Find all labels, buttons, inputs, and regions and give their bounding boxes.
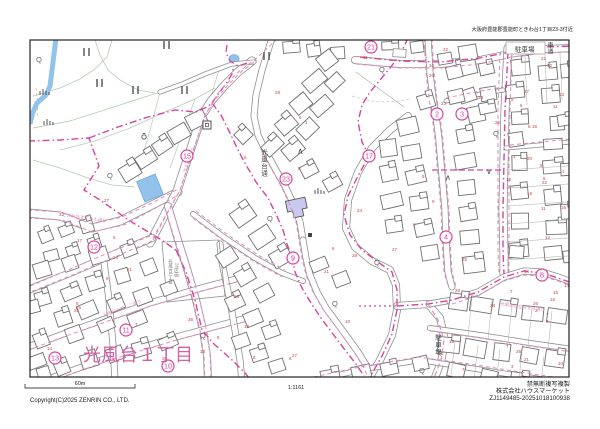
- svg-text:23: 23: [282, 174, 290, 183]
- svg-text:26区画: 26区画: [174, 263, 180, 278]
- svg-text:16: 16: [234, 294, 240, 299]
- svg-text:Copyright(C)2025 ZENRIN CO., L: Copyright(C)2025 ZENRIN CO., LTD.: [30, 398, 130, 404]
- svg-text:22: 22: [542, 180, 548, 185]
- svg-text:25: 25: [462, 257, 468, 262]
- svg-text:車道: 車道: [546, 41, 553, 55]
- svg-text:26: 26: [516, 349, 522, 354]
- svg-text:Q: Q: [36, 55, 42, 64]
- svg-text:15: 15: [449, 339, 455, 344]
- svg-text:20: 20: [527, 156, 533, 161]
- svg-text:10: 10: [345, 319, 351, 324]
- svg-text:11: 11: [363, 55, 368, 60]
- svg-text:13: 13: [51, 353, 59, 362]
- svg-text:27: 27: [292, 353, 298, 358]
- svg-text:25: 25: [76, 305, 82, 310]
- svg-text:15: 15: [553, 290, 559, 295]
- svg-text:11: 11: [553, 104, 558, 109]
- svg-text:15: 15: [183, 151, 191, 160]
- svg-text:21: 21: [367, 42, 375, 51]
- svg-text:14: 14: [524, 269, 530, 274]
- svg-text:1:1161: 1:1161: [288, 385, 304, 391]
- svg-text:13: 13: [559, 92, 565, 97]
- svg-text:4: 4: [444, 232, 448, 241]
- svg-text:21: 21: [524, 357, 530, 362]
- svg-text:Q: Q: [374, 258, 380, 267]
- svg-text:27: 27: [524, 89, 530, 94]
- svg-text:28: 28: [455, 288, 461, 293]
- svg-text:28: 28: [275, 90, 281, 95]
- svg-text:22: 22: [541, 56, 547, 61]
- svg-text:12: 12: [547, 63, 553, 68]
- svg-text:Q: Q: [419, 366, 425, 375]
- svg-text:8: 8: [540, 270, 544, 279]
- svg-text:12: 12: [90, 242, 98, 251]
- svg-text:∧: ∧: [297, 146, 304, 156]
- svg-text:17: 17: [365, 151, 373, 160]
- svg-text:26: 26: [429, 73, 435, 78]
- svg-text:Q: Q: [493, 129, 499, 138]
- svg-text:13: 13: [244, 324, 250, 329]
- svg-text:16: 16: [561, 205, 567, 210]
- svg-text:Q: Q: [267, 214, 273, 223]
- svg-text:26: 26: [533, 301, 539, 306]
- svg-text:9: 9: [291, 253, 295, 262]
- svg-text:大阪府豊能郡豊能町ときわ台1丁目23-3付近: 大阪府豊能郡豊能町ときわ台1丁目23-3付近: [472, 25, 573, 33]
- svg-text:22: 22: [443, 47, 449, 52]
- svg-text:禁無断複写複製: 禁無断複写複製: [527, 380, 570, 388]
- svg-text:駐車場: 駐車場: [515, 45, 535, 54]
- svg-text:∨: ∨: [486, 167, 492, 176]
- svg-text:24: 24: [357, 208, 363, 213]
- svg-text:14: 14: [47, 346, 53, 351]
- svg-text:16: 16: [550, 297, 556, 302]
- svg-text:3: 3: [460, 109, 464, 118]
- svg-text:27: 27: [392, 247, 398, 252]
- svg-text:11: 11: [541, 206, 546, 211]
- svg-text:光風台1丁目: 光風台1丁目: [168, 258, 174, 286]
- svg-text:株式会社ハウスマーケット: 株式会社ハウスマーケット: [496, 387, 570, 395]
- svg-text:24: 24: [113, 255, 119, 260]
- svg-text:10: 10: [429, 63, 435, 68]
- svg-text:12: 12: [506, 177, 512, 182]
- svg-text:光風台１丁目: 光風台１丁目: [83, 345, 193, 365]
- svg-text:21: 21: [127, 267, 133, 272]
- svg-text:28: 28: [490, 303, 496, 308]
- svg-text:23: 23: [441, 101, 447, 106]
- svg-text:26: 26: [188, 317, 194, 322]
- svg-text:∧: ∧: [445, 173, 451, 182]
- svg-text:Q: Q: [200, 331, 206, 340]
- svg-text:18: 18: [532, 124, 538, 129]
- svg-text:10: 10: [558, 361, 564, 366]
- svg-text:13: 13: [200, 349, 206, 354]
- svg-text:17: 17: [77, 238, 83, 243]
- svg-text:60m: 60m: [75, 381, 86, 387]
- svg-text:18: 18: [527, 191, 533, 196]
- svg-text:Q: Q: [379, 65, 385, 74]
- svg-text:23: 23: [478, 95, 484, 100]
- svg-text:28: 28: [352, 253, 358, 258]
- svg-text:2: 2: [435, 109, 439, 118]
- svg-text:ZJ1149485-20251018100938: ZJ1149485-20251018100938: [489, 395, 570, 402]
- svg-text:Q: Q: [107, 171, 113, 180]
- svg-text:12: 12: [545, 235, 551, 240]
- svg-text:25: 25: [495, 120, 501, 125]
- svg-text:11: 11: [122, 325, 129, 334]
- svg-text:27: 27: [104, 198, 110, 203]
- svg-text:21: 21: [324, 269, 330, 274]
- svg-text:Q: Q: [332, 299, 338, 308]
